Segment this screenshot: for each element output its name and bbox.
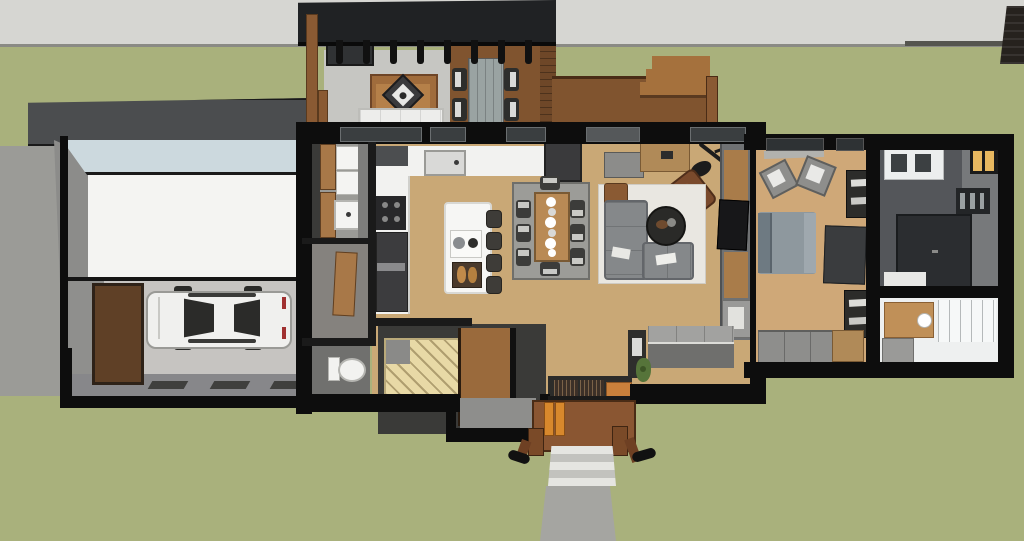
cutting-board [450, 230, 482, 258]
car-side-window [188, 293, 256, 297]
sideboard-wood [640, 142, 690, 172]
wall-bathrooms-divider [874, 286, 1004, 298]
closet-wood-door [332, 251, 357, 316]
bathroom-vanity [884, 148, 944, 180]
round-coffee-table [646, 206, 686, 246]
car [146, 289, 288, 347]
dining-chair [570, 200, 585, 218]
bar-stool [486, 276, 502, 294]
pavilion-post [306, 14, 318, 134]
bar-stool [486, 254, 502, 272]
deck-chair [504, 98, 519, 121]
front-door-leaf [555, 402, 565, 436]
stacked-appliance [336, 171, 360, 195]
media-wall-slats-bottom [724, 252, 748, 298]
window-top-wall [586, 127, 640, 142]
deck-step-1 [640, 82, 710, 98]
wall-mudroom-h2 [302, 338, 376, 346]
amber-window [970, 148, 998, 174]
media-wall-slats-top [724, 150, 748, 202]
garage-roof-white [88, 175, 312, 277]
bread-tray [452, 262, 482, 288]
cooktop [376, 196, 406, 230]
roof-rafter [390, 40, 397, 64]
wall-south-left [296, 394, 460, 412]
gray-fixture [882, 338, 914, 364]
garage-gutter [62, 140, 312, 175]
stacked-appliance [336, 146, 360, 170]
window-top-wall [506, 127, 546, 142]
kitchen-upper-dark [374, 146, 408, 166]
glass-shower-panels [938, 300, 996, 342]
garage-roof-band [28, 98, 312, 146]
garage-floor-vent [210, 381, 251, 389]
winder-landing [386, 340, 410, 364]
bed-pillows [758, 213, 772, 273]
slat-doormat [580, 380, 604, 396]
deck-chair [504, 68, 519, 91]
front-door-leaf [544, 402, 554, 436]
dining-table [534, 192, 570, 262]
oven-tower [376, 232, 408, 312]
kitchen-sink [424, 150, 466, 176]
roof-rafter [444, 40, 451, 64]
dining-chair [570, 224, 585, 242]
wall-mudroom-h1 [302, 238, 376, 244]
dining-chair [570, 248, 585, 266]
closet-wood-unit [832, 330, 864, 362]
garage-wall-bottom [60, 396, 312, 408]
porch-steps [548, 446, 616, 486]
wall-kitchen-stairs [372, 318, 472, 326]
window-top-wall [690, 127, 746, 142]
front-walkway [540, 486, 616, 541]
towel-shelf [956, 188, 990, 214]
dining-chair [516, 200, 531, 218]
toilet-bowl [338, 358, 366, 382]
car-taillight [282, 327, 286, 339]
car-side-window [188, 339, 256, 343]
car-hood-line [158, 297, 160, 339]
bedroom-window-dark [766, 138, 824, 151]
garage-side-door [92, 283, 144, 385]
driveway [0, 146, 64, 396]
roof-rafter [498, 40, 505, 64]
dining-end-chair [540, 176, 560, 190]
bar-stool [486, 210, 502, 228]
roof-rafter [363, 40, 370, 64]
window-bench-front [648, 342, 734, 368]
slat-doormat [554, 380, 578, 396]
garage-wall-interior [64, 348, 72, 400]
tv-screen [717, 199, 750, 251]
bed-throw [804, 213, 816, 273]
bar-stool [486, 232, 502, 250]
window-bench-top [648, 326, 734, 342]
roof-rafter [336, 40, 343, 64]
floorplan-render-viewport [0, 0, 1024, 541]
wall-west [296, 122, 312, 414]
mudroom-cabinet-wood [320, 144, 336, 190]
window-top-wall [340, 127, 422, 142]
console-gray [604, 152, 644, 178]
roof-rafter [417, 40, 424, 64]
deck-chair [452, 68, 467, 91]
roof-rafter [525, 40, 532, 64]
wall-south-right-of-entry [630, 384, 764, 404]
car-taillight [282, 297, 286, 309]
roof-rafter [471, 40, 478, 64]
second-bath-vanity [884, 302, 934, 338]
dining-chair [516, 248, 531, 266]
bedroom-dresser [823, 225, 867, 284]
bedroom-window-dark [836, 138, 864, 151]
wall-bedroom-bath-divider [866, 134, 880, 378]
wall-east-right-section [998, 134, 1014, 378]
entry-plant [636, 358, 651, 382]
window-top-wall [430, 127, 466, 142]
deck-chair [452, 98, 467, 121]
dining-end-chair [540, 262, 560, 276]
garage-floor-vent [148, 381, 189, 389]
dining-chair [516, 224, 531, 242]
